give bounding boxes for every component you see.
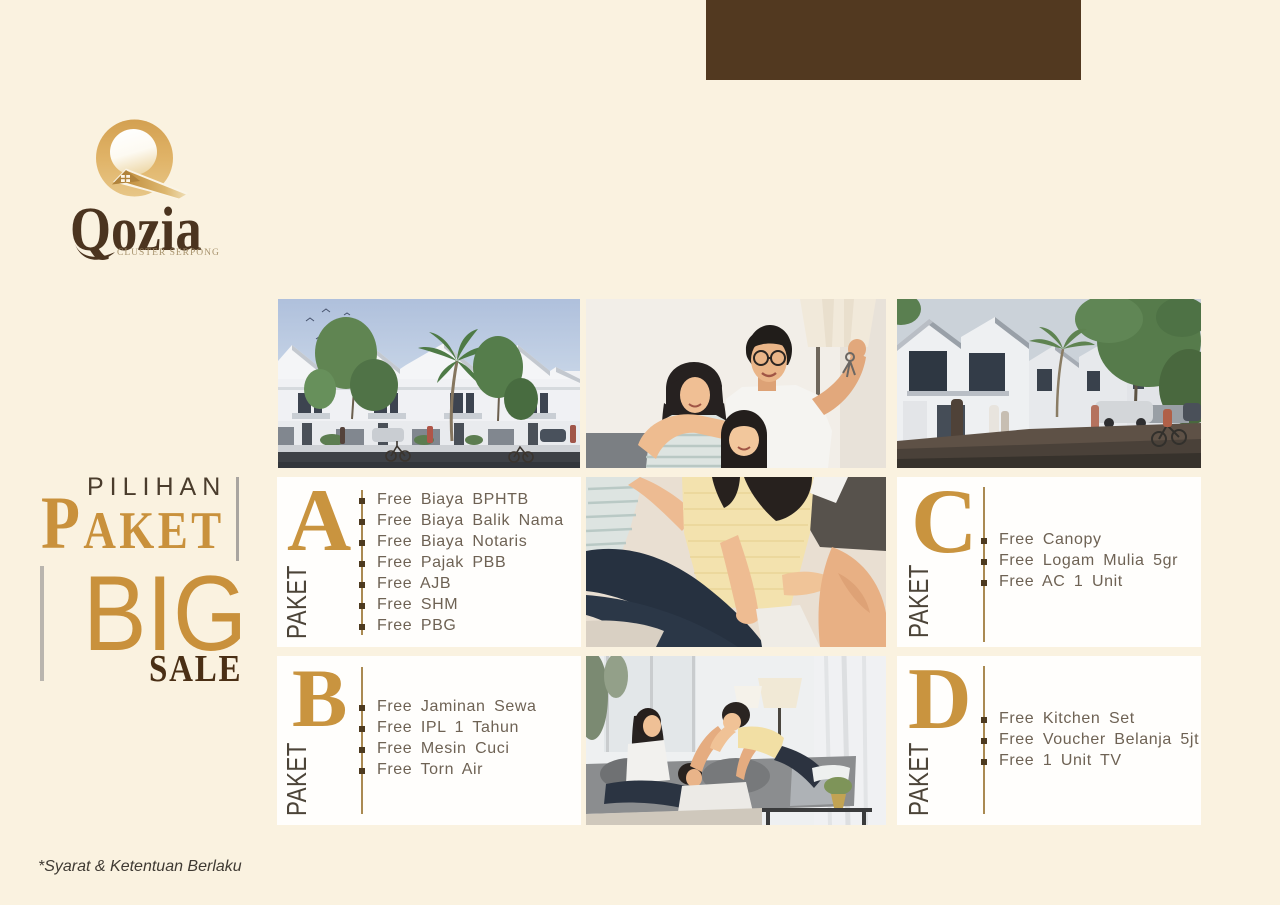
svg-text:CLUSTER SERPONG: CLUSTER SERPONG xyxy=(117,248,220,258)
